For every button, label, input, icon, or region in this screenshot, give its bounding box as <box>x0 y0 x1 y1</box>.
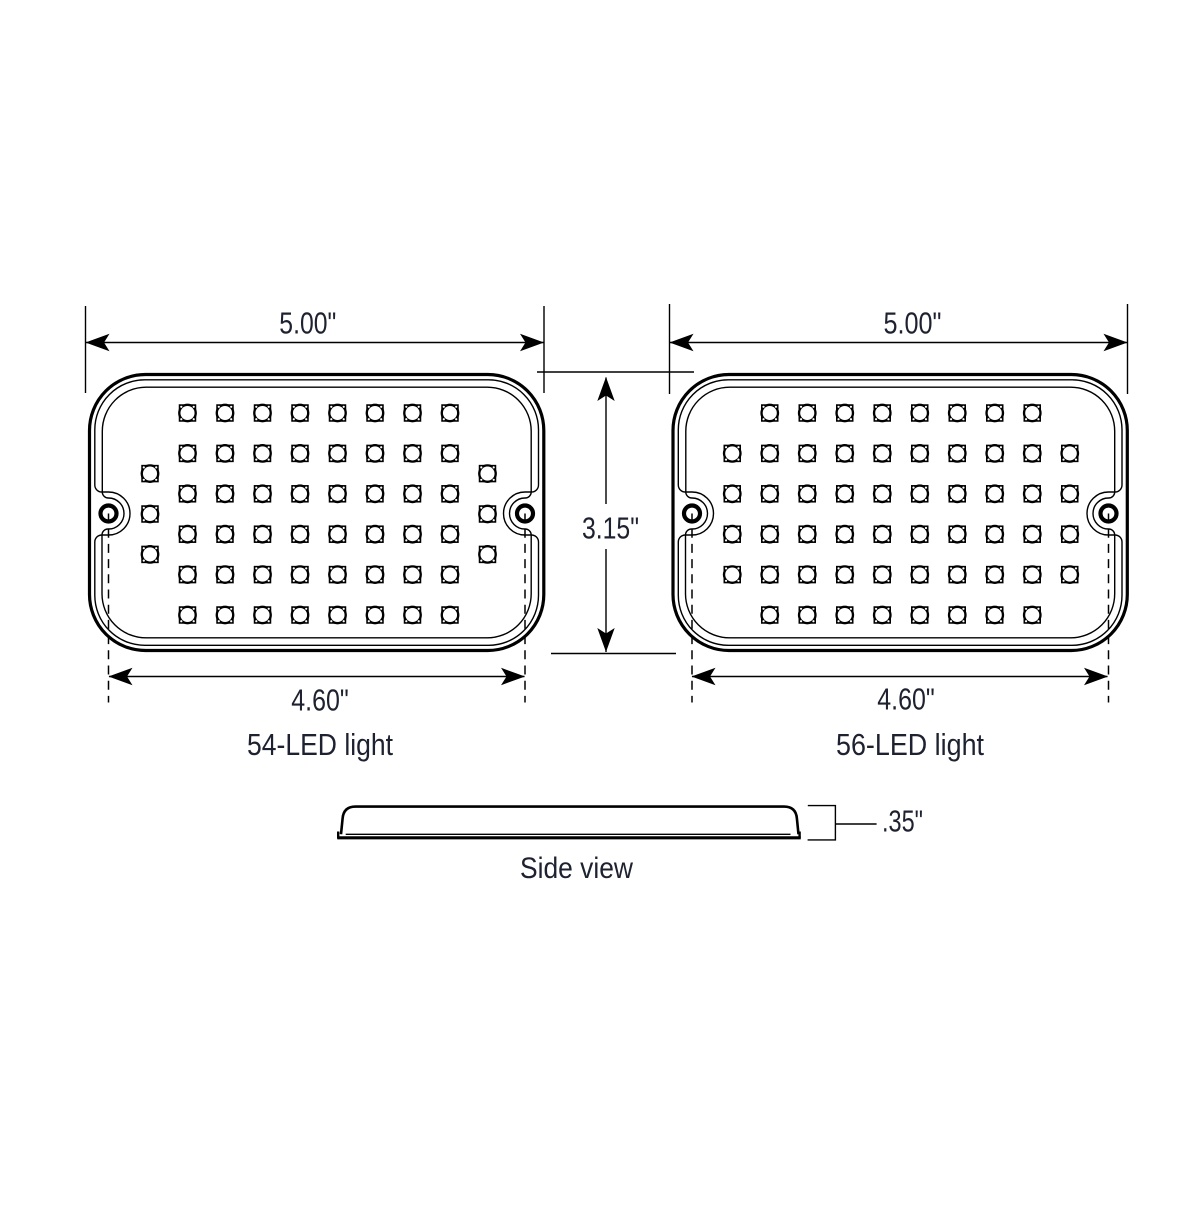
svg-text:54-LED light: 54-LED light <box>247 728 393 762</box>
svg-text:56-LED light: 56-LED light <box>836 728 984 762</box>
svg-text:3.15": 3.15" <box>582 512 639 546</box>
svg-text:.35": .35" <box>882 805 923 839</box>
svg-text:4.60": 4.60" <box>877 683 935 717</box>
svg-text:4.60": 4.60" <box>291 684 349 718</box>
svg-text:Side view: Side view <box>520 852 634 885</box>
svg-text:5.00": 5.00" <box>884 307 942 341</box>
svg-text:5.00": 5.00" <box>279 307 336 341</box>
